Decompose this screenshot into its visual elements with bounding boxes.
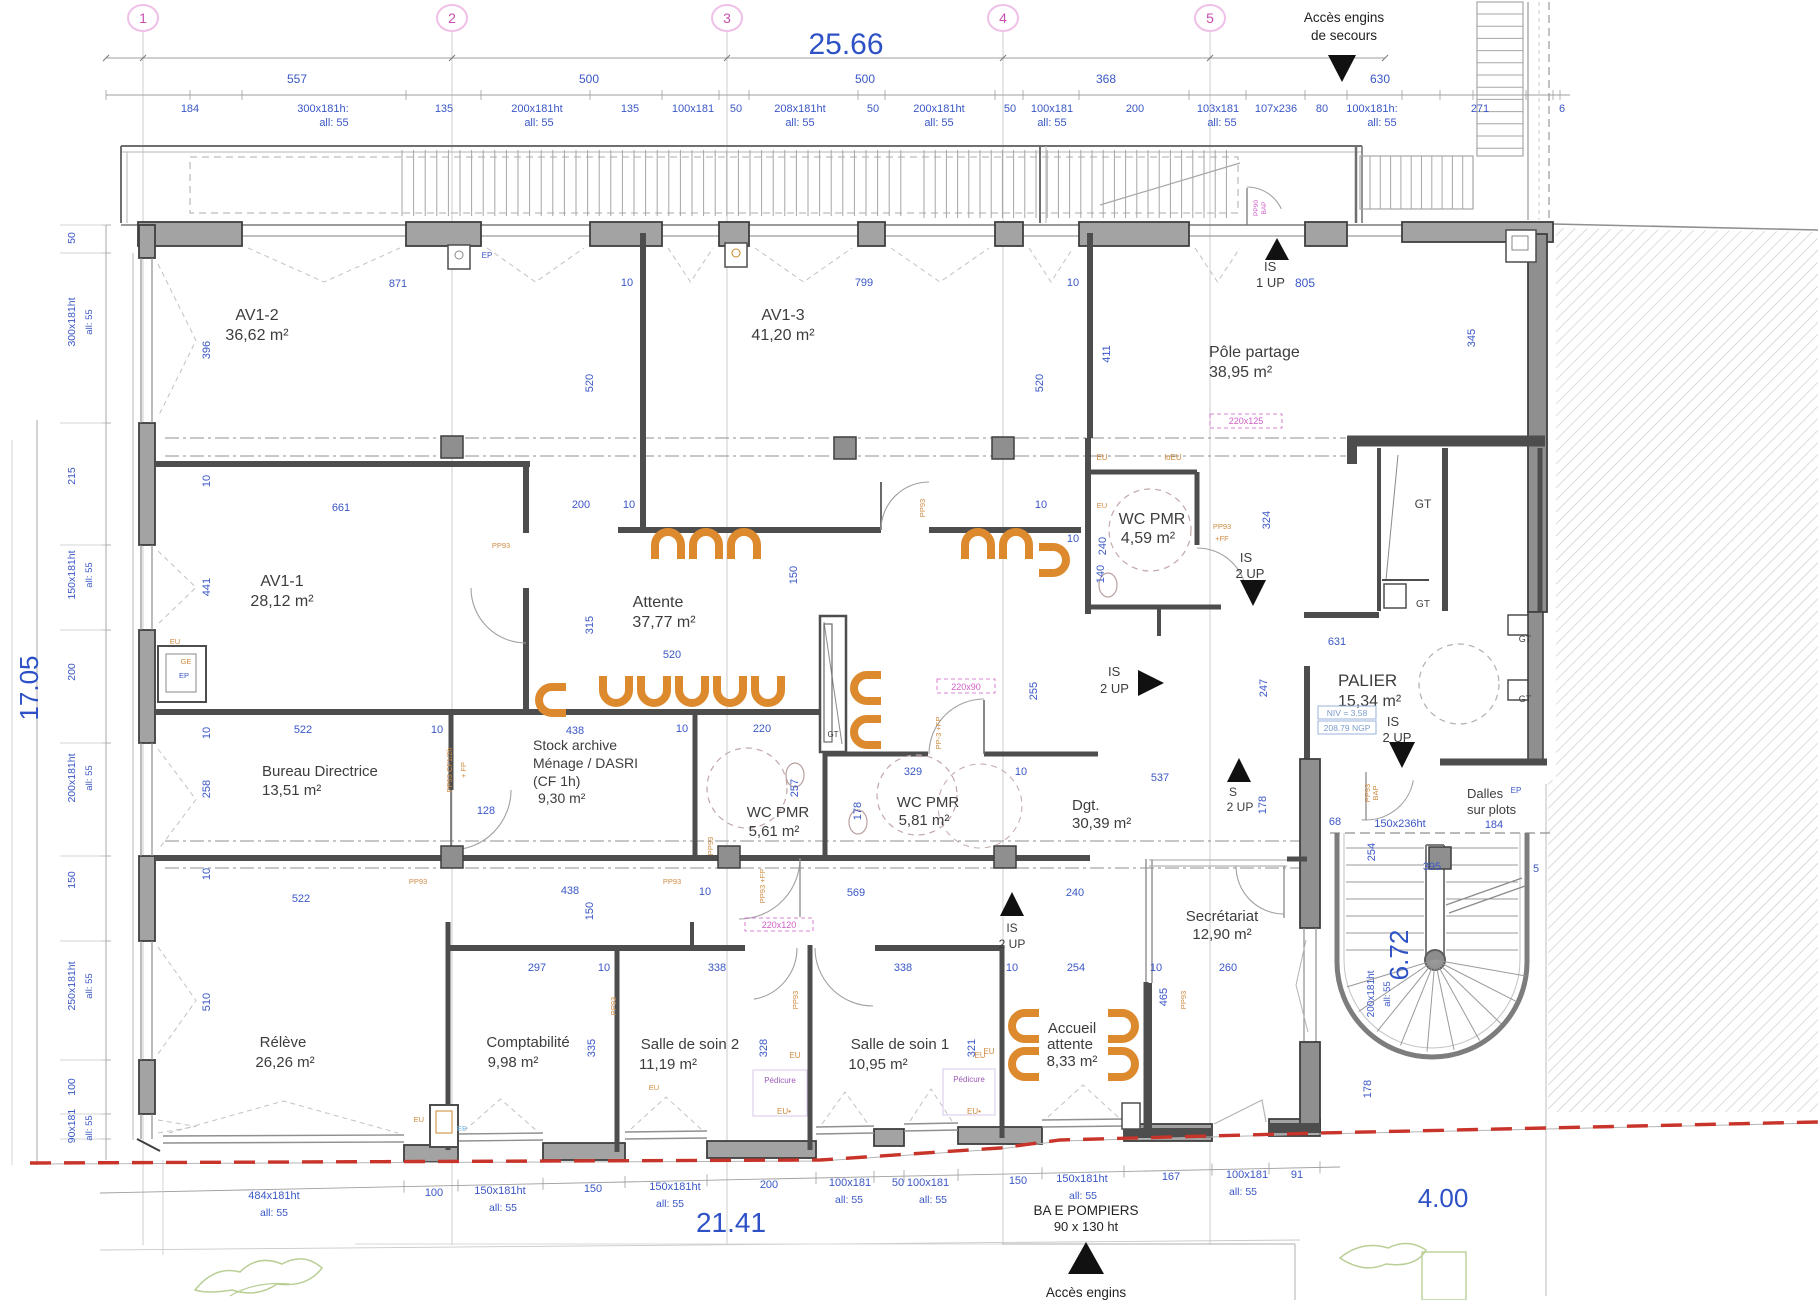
- svg-text:257: 257: [789, 779, 801, 797]
- svg-text:631: 631: [1328, 636, 1346, 648]
- svg-text:all: 55: all: 55: [1069, 1190, 1097, 1202]
- svg-text:26,26 m²: 26,26 m²: [255, 1054, 314, 1071]
- svg-text:10: 10: [623, 499, 635, 511]
- svg-text:EU: EU: [649, 1083, 659, 1092]
- svg-text:135: 135: [621, 103, 639, 115]
- svg-text:10: 10: [1067, 533, 1079, 545]
- svg-text:208.79 NGP: 208.79 NGP: [1324, 723, 1371, 733]
- svg-text:EP: EP: [179, 671, 189, 680]
- svg-text:Salle de soin 1: Salle de soin 1: [851, 1036, 949, 1053]
- svg-text:10: 10: [201, 475, 213, 487]
- svg-text:100x181: 100x181: [1031, 103, 1073, 115]
- svg-text:510: 510: [201, 993, 213, 1011]
- svg-text:9,98 m²: 9,98 m²: [488, 1054, 539, 1071]
- svg-text:all: 55: all: 55: [84, 309, 95, 334]
- svg-text:10: 10: [1067, 277, 1079, 289]
- svg-text:250x181ht: 250x181ht: [66, 961, 78, 1010]
- svg-text:30,39 m²: 30,39 m²: [1072, 815, 1131, 832]
- svg-text:396: 396: [201, 341, 213, 359]
- svg-text:PP93 CF1/2h: PP93 CF1/2h: [445, 747, 454, 792]
- svg-text:10,95 m²: 10,95 m²: [848, 1056, 907, 1073]
- svg-text:254: 254: [1366, 843, 1378, 861]
- svg-text:522: 522: [292, 893, 310, 905]
- svg-text:EU: EU: [1097, 501, 1107, 510]
- svg-text:255: 255: [1028, 682, 1040, 700]
- svg-text:GT: GT: [1519, 694, 1532, 704]
- svg-text:all: 55: all: 55: [84, 562, 95, 587]
- svg-text:871: 871: [389, 278, 407, 290]
- svg-text:17.05: 17.05: [14, 655, 44, 720]
- svg-text:520: 520: [584, 374, 596, 392]
- svg-text:all: 55: all: 55: [835, 1194, 863, 1206]
- svg-text:500: 500: [579, 72, 599, 86]
- svg-text:GT: GT: [1415, 497, 1432, 511]
- svg-text:IS: IS: [1108, 664, 1121, 679]
- svg-text:200: 200: [760, 1179, 778, 1191]
- svg-text:150: 150: [584, 1183, 602, 1195]
- svg-text:50: 50: [730, 103, 742, 115]
- svg-text:all: 55: all: 55: [919, 1194, 947, 1206]
- svg-text:5: 5: [1533, 863, 1539, 875]
- svg-text:PP93: PP93: [1213, 522, 1231, 531]
- svg-text:Accès engins: Accès engins: [1304, 10, 1385, 25]
- svg-text:Bureau Directrice: Bureau Directrice: [262, 763, 378, 780]
- svg-text:107x236: 107x236: [1255, 103, 1297, 115]
- svg-text:258: 258: [201, 780, 213, 798]
- svg-text:324: 324: [1261, 511, 1273, 529]
- svg-text:10: 10: [621, 277, 633, 289]
- svg-text:260: 260: [1219, 962, 1237, 974]
- svg-text:all: 55: all: 55: [524, 117, 553, 129]
- svg-text:de secours: de secours: [1311, 28, 1377, 43]
- svg-text:PP90: PP90: [1253, 200, 1260, 216]
- svg-text:BAP: BAP: [1371, 785, 1380, 800]
- svg-text:GT: GT: [1416, 599, 1430, 610]
- svg-text:PP93: PP93: [1179, 991, 1188, 1009]
- svg-text:220x125: 220x125: [1229, 416, 1264, 426]
- svg-text:10: 10: [201, 727, 213, 739]
- svg-text:PP93: PP93: [918, 499, 927, 517]
- svg-text:100x181: 100x181: [672, 103, 714, 115]
- svg-text:EP: EP: [1511, 786, 1522, 795]
- svg-text:PP93: PP93: [409, 877, 427, 886]
- svg-text:Accès engins: Accès engins: [1046, 1285, 1127, 1300]
- svg-text:NIV = 3.58: NIV = 3.58: [1327, 708, 1368, 718]
- svg-text:338: 338: [708, 962, 726, 974]
- svg-text:80: 80: [1316, 103, 1328, 115]
- svg-text:220x90: 220x90: [951, 682, 981, 692]
- svg-text:+ FP: + FP: [459, 762, 468, 778]
- svg-text:Dgt.: Dgt.: [1072, 797, 1100, 814]
- svg-text:BAP: BAP: [1261, 201, 1268, 214]
- svg-text:Secrétariat: Secrétariat: [1186, 908, 1259, 925]
- svg-text:all: 55: all: 55: [1037, 117, 1066, 129]
- svg-text:200x181ht: 200x181ht: [1366, 970, 1377, 1017]
- svg-text:6: 6: [1559, 103, 1565, 115]
- svg-text:PP93: PP93: [791, 991, 800, 1009]
- svg-text:338: 338: [894, 962, 912, 974]
- svg-text:attente: attente: [1047, 1036, 1093, 1053]
- svg-text:50: 50: [1004, 103, 1016, 115]
- svg-text:315: 315: [584, 616, 596, 634]
- svg-text:WC PMR: WC PMR: [1119, 511, 1186, 528]
- svg-text:300x181ht: 300x181ht: [66, 297, 78, 346]
- svg-text:100x181: 100x181: [829, 1177, 871, 1189]
- svg-text:200: 200: [66, 663, 78, 681]
- svg-text:Pédicure: Pédicure: [953, 1075, 985, 1084]
- svg-text:2 UP: 2 UP: [1227, 800, 1254, 814]
- svg-text:50: 50: [892, 1177, 904, 1189]
- svg-text:91: 91: [1291, 1169, 1303, 1181]
- svg-text:12,90 m²: 12,90 m²: [1192, 926, 1251, 943]
- svg-text:2 UP: 2 UP: [1383, 730, 1412, 745]
- svg-text:50: 50: [867, 103, 879, 115]
- svg-text:150: 150: [1009, 1175, 1027, 1187]
- svg-text:EU: EU: [983, 1047, 994, 1056]
- svg-text:200x181ht: 200x181ht: [511, 103, 562, 115]
- svg-text:BA E POMPIERS: BA E POMPIERS: [1033, 1203, 1138, 1218]
- svg-text:328: 328: [758, 1039, 770, 1057]
- svg-text:90 x 130 ht: 90 x 130 ht: [1054, 1219, 1119, 1234]
- svg-text:128: 128: [477, 805, 495, 817]
- svg-text:WC PMR: WC PMR: [747, 804, 810, 821]
- svg-text:S: S: [1229, 785, 1237, 799]
- svg-text:3: 3: [723, 10, 731, 26]
- svg-text:150x181ht: 150x181ht: [474, 1185, 525, 1197]
- svg-text:300x181h:: 300x181h:: [297, 103, 348, 115]
- svg-text:4: 4: [999, 10, 1007, 26]
- svg-text:EU: EU: [789, 1051, 800, 1060]
- svg-text:PALIER: PALIER: [1338, 671, 1397, 690]
- svg-text:200x181ht: 200x181ht: [66, 753, 78, 802]
- svg-text:208x181ht: 208x181ht: [774, 103, 825, 115]
- svg-text:247: 247: [1258, 679, 1270, 697]
- svg-text:all: 55: all: 55: [84, 1115, 95, 1140]
- svg-text:36,62 m²: 36,62 m²: [225, 327, 289, 344]
- svg-text:661: 661: [332, 502, 350, 514]
- svg-text:438: 438: [561, 885, 579, 897]
- svg-text:240: 240: [1066, 887, 1084, 899]
- svg-text:805: 805: [1295, 276, 1315, 290]
- svg-text:all: 55: all: 55: [1207, 117, 1236, 129]
- svg-text:all: 55: all: 55: [1382, 981, 1393, 1006]
- svg-text:9,30 m²: 9,30 m²: [538, 790, 586, 806]
- svg-text:329: 329: [904, 766, 922, 778]
- svg-text:13,51 m²: 13,51 m²: [262, 782, 321, 799]
- svg-text:10: 10: [201, 868, 213, 880]
- svg-text:PP93 +FP: PP93 +FP: [758, 869, 767, 903]
- svg-text:150x236ht: 150x236ht: [1374, 818, 1425, 830]
- svg-text:2 UP: 2 UP: [1100, 681, 1129, 696]
- svg-text:41,20 m²: 41,20 m²: [751, 327, 815, 344]
- svg-text:PP93: PP93: [609, 997, 618, 1015]
- svg-text:GT: GT: [827, 730, 838, 739]
- svg-text:Attente: Attente: [633, 594, 684, 611]
- svg-text:(CF 1h): (CF 1h): [533, 773, 580, 789]
- svg-text:PP93: PP93: [492, 541, 510, 550]
- svg-text:Pédicure: Pédicure: [764, 1076, 796, 1085]
- svg-text:EU: EU: [414, 1115, 424, 1124]
- svg-text:IS: IS: [1264, 259, 1277, 274]
- svg-text:PP-3 +FP: PP-3 +FP: [934, 717, 943, 750]
- svg-text:EP: EP: [482, 251, 493, 260]
- svg-text:441: 441: [201, 578, 213, 596]
- svg-text:100: 100: [66, 1078, 78, 1096]
- svg-text:200: 200: [1126, 103, 1144, 115]
- svg-text:100x181: 100x181: [907, 1177, 949, 1189]
- svg-text:150: 150: [788, 566, 800, 584]
- svg-text:Pôle partage: Pôle partage: [1209, 344, 1300, 361]
- svg-text:184: 184: [1485, 819, 1503, 831]
- svg-text:WC PMR: WC PMR: [897, 794, 960, 811]
- svg-text:1 UP: 1 UP: [1256, 275, 1285, 290]
- svg-text:all: 55: all: 55: [84, 765, 95, 790]
- svg-text:all: 55: all: 55: [1367, 117, 1396, 129]
- svg-text:10: 10: [598, 962, 610, 974]
- svg-text:557: 557: [287, 72, 307, 86]
- svg-text:395: 395: [1423, 861, 1441, 873]
- svg-text:all: 55: all: 55: [656, 1198, 684, 1210]
- svg-text:799: 799: [855, 277, 873, 289]
- svg-text:184: 184: [181, 103, 199, 115]
- svg-text:all: 55: all: 55: [1229, 1186, 1257, 1198]
- svg-text:150x181ht: 150x181ht: [649, 1181, 700, 1193]
- svg-text:68: 68: [1329, 816, 1341, 828]
- svg-text:PP93: PP93: [706, 837, 715, 855]
- svg-text:200x181ht: 200x181ht: [913, 103, 964, 115]
- svg-text:5,61 m²: 5,61 m²: [749, 823, 800, 840]
- svg-text:6.72: 6.72: [1384, 930, 1414, 981]
- svg-text:AV1-1: AV1-1: [260, 573, 303, 590]
- svg-text:520: 520: [663, 649, 681, 661]
- svg-text:150x181ht: 150x181ht: [66, 550, 78, 599]
- svg-text:50: 50: [66, 232, 78, 244]
- svg-text:1: 1: [139, 10, 147, 26]
- svg-text:438: 438: [566, 725, 584, 737]
- svg-text:28,12 m²: 28,12 m²: [250, 593, 314, 610]
- svg-text:215: 215: [66, 467, 78, 485]
- svg-text:150: 150: [66, 871, 78, 889]
- svg-text:Salle de soin 2: Salle de soin 2: [641, 1036, 739, 1053]
- svg-text:11,19 m²: 11,19 m²: [639, 1056, 697, 1073]
- svg-text:150x181ht: 150x181ht: [1056, 1173, 1107, 1185]
- svg-text:271: 271: [1471, 103, 1489, 115]
- svg-text:10: 10: [1006, 962, 1018, 974]
- svg-text:2: 2: [448, 10, 456, 26]
- svg-text:+FF: +FF: [1215, 534, 1229, 543]
- svg-text:103x181: 103x181: [1197, 103, 1239, 115]
- svg-text:500: 500: [855, 72, 875, 86]
- svg-text:220: 220: [753, 723, 771, 735]
- svg-text:IS: IS: [1387, 714, 1400, 729]
- svg-text:345: 345: [1466, 329, 1478, 347]
- svg-text:200: 200: [572, 499, 590, 511]
- svg-text:10: 10: [676, 723, 688, 735]
- svg-text:37,77 m²: 37,77 m²: [632, 614, 696, 631]
- svg-text:167: 167: [1162, 1171, 1180, 1183]
- svg-text:4.00: 4.00: [1418, 1183, 1469, 1213]
- svg-text:10: 10: [1035, 499, 1047, 511]
- svg-text:484x181ht: 484x181ht: [248, 1190, 299, 1202]
- svg-text:465: 465: [1158, 988, 1170, 1006]
- svg-text:5: 5: [1206, 10, 1214, 26]
- svg-text:90x181: 90x181: [66, 1109, 78, 1144]
- svg-text:all: 55: all: 55: [489, 1202, 517, 1214]
- svg-text:all: 55: all: 55: [924, 117, 953, 129]
- svg-text:38,95 m²: 38,95 m²: [1209, 364, 1273, 381]
- svg-text:520: 520: [1034, 374, 1046, 392]
- svg-text:Ménage / DASRI: Ménage / DASRI: [533, 755, 638, 771]
- svg-text:254: 254: [1067, 962, 1085, 974]
- svg-text:10: 10: [431, 724, 443, 736]
- svg-text:Accueil: Accueil: [1048, 1020, 1096, 1037]
- svg-text:10: 10: [699, 886, 711, 898]
- svg-text:2 UP: 2 UP: [999, 937, 1026, 951]
- svg-text:100x181h:: 100x181h:: [1346, 103, 1397, 115]
- svg-text:EU•: EU•: [777, 1107, 791, 1116]
- svg-text:GT: GT: [1519, 634, 1532, 644]
- svg-text:all: 55: all: 55: [84, 973, 95, 998]
- svg-text:AV1-2: AV1-2: [235, 307, 278, 324]
- svg-text:Dalles: Dalles: [1467, 786, 1504, 801]
- svg-text:EU: EU: [170, 637, 180, 646]
- svg-text:EP: EP: [457, 1124, 467, 1133]
- svg-text:Rélève: Rélève: [260, 1034, 307, 1051]
- svg-text:Comptabilité: Comptabilité: [486, 1034, 569, 1051]
- svg-text:4,59 m²: 4,59 m²: [1121, 530, 1176, 547]
- svg-text:178: 178: [1257, 796, 1269, 814]
- svg-text:10: 10: [1015, 766, 1027, 778]
- svg-text:335: 335: [586, 1039, 598, 1057]
- svg-text:220x120: 220x120: [762, 920, 797, 930]
- svg-text:GE: GE: [181, 657, 192, 666]
- svg-text:135: 135: [435, 103, 453, 115]
- svg-text:loEU: loEU: [1164, 453, 1182, 462]
- svg-text:all: 55: all: 55: [785, 117, 814, 129]
- svg-text:all: 55: all: 55: [260, 1207, 288, 1219]
- svg-text:569: 569: [847, 887, 865, 899]
- svg-text:537: 537: [1151, 772, 1169, 784]
- svg-text:368: 368: [1096, 72, 1116, 86]
- svg-text:all: 55: all: 55: [319, 117, 348, 129]
- svg-text:297: 297: [528, 962, 546, 974]
- svg-text:5,81 m²: 5,81 m²: [899, 812, 950, 829]
- svg-text:522: 522: [294, 724, 312, 736]
- svg-text:100x181: 100x181: [1226, 1169, 1268, 1181]
- svg-text:EU: EU: [1096, 453, 1107, 462]
- svg-text:178: 178: [852, 802, 864, 820]
- svg-text:8,33 m²: 8,33 m²: [1047, 1053, 1098, 1070]
- svg-text:630: 630: [1370, 72, 1390, 86]
- svg-text:25.66: 25.66: [808, 28, 883, 61]
- svg-text:Stock archive: Stock archive: [533, 737, 617, 753]
- svg-text:240: 240: [1097, 537, 1109, 555]
- svg-text:sur plots: sur plots: [1467, 802, 1517, 817]
- svg-text:100: 100: [425, 1187, 443, 1199]
- svg-text:411: 411: [1101, 345, 1113, 363]
- svg-text:21.41: 21.41: [696, 1207, 766, 1238]
- svg-text:140: 140: [1095, 565, 1107, 583]
- svg-text:150: 150: [584, 902, 596, 920]
- svg-text:PP93: PP93: [663, 877, 681, 886]
- svg-text:178: 178: [1362, 1080, 1374, 1098]
- svg-text:AV1-3: AV1-3: [761, 307, 804, 324]
- svg-text:2 UP: 2 UP: [1236, 566, 1265, 581]
- svg-text:IS: IS: [1006, 921, 1017, 935]
- svg-text:10: 10: [1150, 962, 1162, 974]
- svg-text:IS: IS: [1240, 550, 1253, 565]
